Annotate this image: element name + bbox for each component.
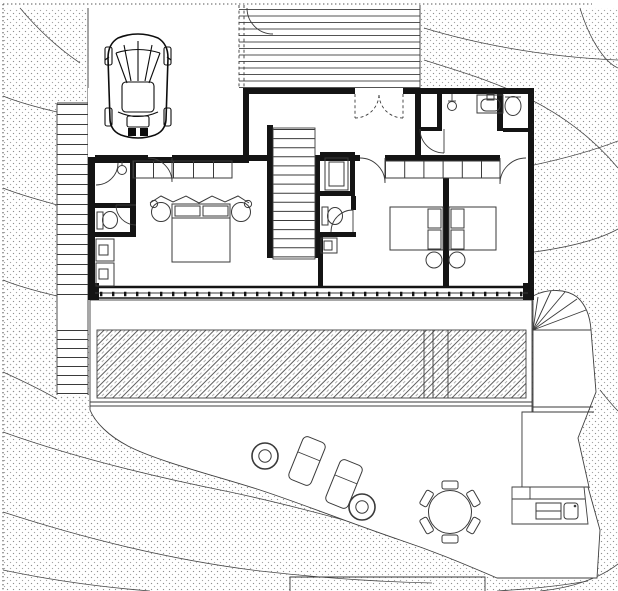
deck-hatched [97,330,526,398]
side-stair-west [57,103,88,395]
floor-plan-drawing [0,0,618,591]
rear-vent [140,128,148,136]
bbq-counter [512,487,588,524]
entry-canopy [239,5,420,88]
terrace [90,300,532,406]
rear-vent [128,128,136,136]
floor-plan-canvas [0,0,618,591]
main-stair [273,128,315,259]
